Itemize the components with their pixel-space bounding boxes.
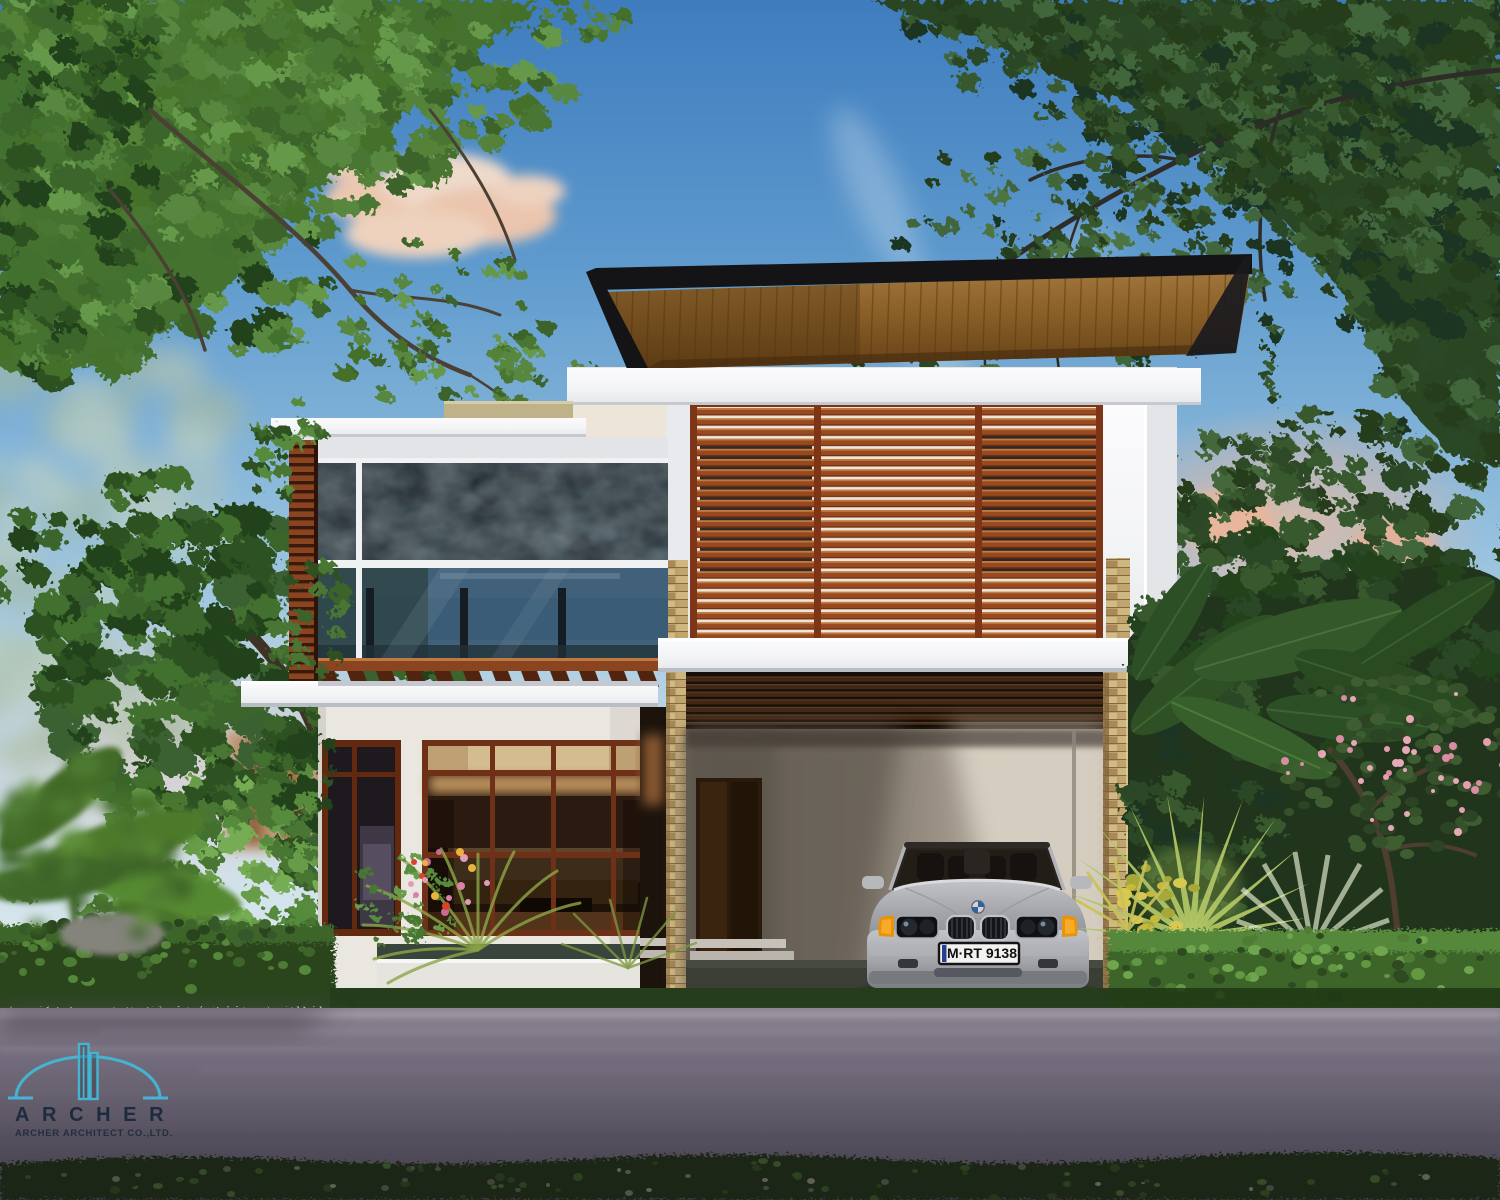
svg-text:ARCHER ARCHITECT CO.,LTD.: ARCHER ARCHITECT CO.,LTD. [15,1128,173,1139]
svg-text:ARCHER: ARCHER [15,1104,176,1126]
svg-text:M·RT 9138: M·RT 9138 [947,945,1017,961]
